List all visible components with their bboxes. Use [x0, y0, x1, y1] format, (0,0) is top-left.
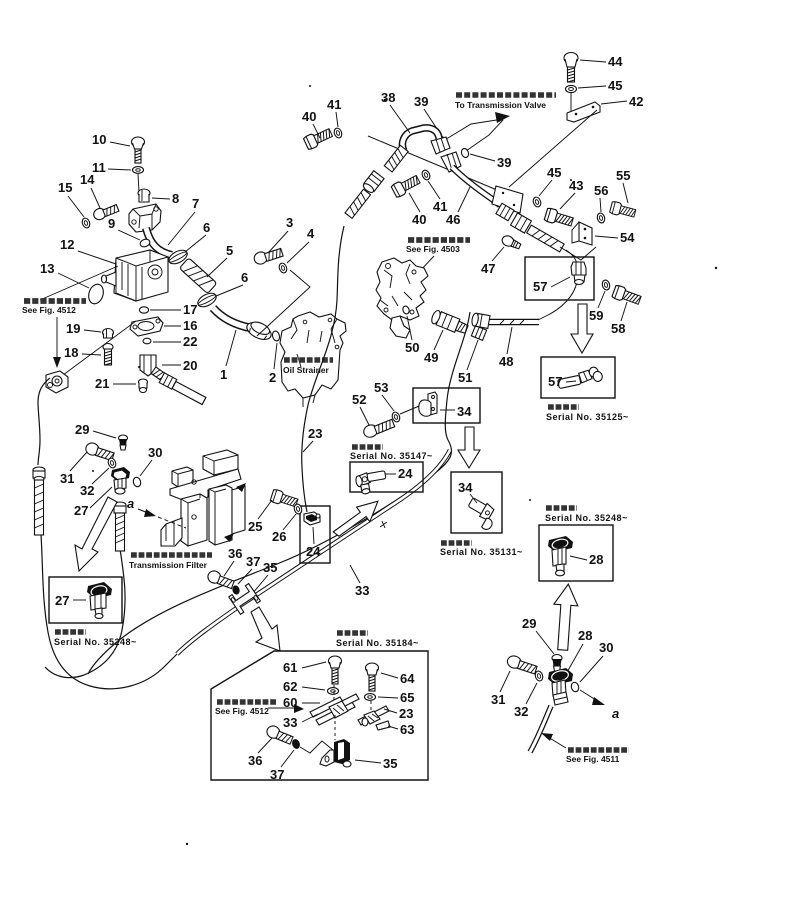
svg-text:32: 32: [514, 704, 528, 719]
svg-text:15: 15: [58, 180, 72, 195]
svg-text:36: 36: [248, 753, 262, 768]
svg-text:36: 36: [228, 546, 242, 561]
svg-text:34: 34: [457, 404, 472, 419]
svg-text:48: 48: [499, 354, 513, 369]
svg-text:33: 33: [355, 583, 369, 598]
svg-text:6: 6: [203, 220, 210, 235]
svg-text:Serial No. 35131~: Serial No. 35131~: [440, 547, 523, 557]
svg-text:9: 9: [108, 216, 115, 231]
svg-text:28: 28: [578, 628, 592, 643]
svg-text:40: 40: [302, 109, 316, 124]
svg-text:64: 64: [400, 671, 415, 686]
svg-text:45: 45: [608, 78, 622, 93]
svg-text:8: 8: [172, 191, 179, 206]
svg-text:55: 55: [616, 168, 630, 183]
svg-text:59: 59: [589, 308, 603, 323]
svg-text:See Fig. 4512: See Fig. 4512: [215, 706, 269, 716]
svg-text:a: a: [127, 496, 134, 511]
svg-text:41: 41: [327, 97, 341, 112]
svg-text:23: 23: [308, 426, 322, 441]
svg-text:22: 22: [183, 334, 197, 349]
svg-text:4: 4: [307, 226, 315, 241]
svg-text:53: 53: [374, 380, 388, 395]
svg-text:Serial No. 35125~: Serial No. 35125~: [546, 412, 629, 422]
svg-text:24: 24: [306, 544, 321, 559]
svg-text:65: 65: [400, 690, 414, 705]
svg-text:56: 56: [594, 183, 608, 198]
svg-text:20: 20: [183, 358, 197, 373]
svg-text:31: 31: [491, 692, 505, 707]
svg-text:29: 29: [522, 616, 536, 631]
svg-text:57: 57: [548, 374, 562, 389]
svg-text:32: 32: [80, 483, 94, 498]
svg-text:28: 28: [589, 552, 603, 567]
svg-text:12: 12: [60, 237, 74, 252]
svg-text:To Transmission Valve: To Transmission Valve: [455, 100, 546, 110]
svg-text:Serial No. 35248~: Serial No. 35248~: [545, 513, 628, 523]
svg-text:See Fig. 4511: See Fig. 4511: [566, 754, 620, 764]
svg-text:46: 46: [446, 212, 460, 227]
svg-text:13: 13: [40, 261, 54, 276]
svg-text:51: 51: [458, 370, 472, 385]
svg-text:See Fig. 4503: See Fig. 4503: [406, 244, 460, 254]
svg-text:49: 49: [424, 350, 438, 365]
svg-text:17: 17: [183, 302, 197, 317]
svg-text:40: 40: [412, 212, 426, 227]
svg-text:See Fig. 4512: See Fig. 4512: [22, 305, 76, 315]
svg-text:5: 5: [226, 243, 233, 258]
svg-text:16: 16: [183, 318, 197, 333]
svg-text:18: 18: [64, 345, 78, 360]
svg-text:21: 21: [95, 376, 109, 391]
svg-text:2: 2: [269, 370, 276, 385]
svg-text:39: 39: [497, 155, 511, 170]
svg-text:39: 39: [414, 94, 428, 109]
svg-text:25: 25: [248, 519, 262, 534]
svg-text:61: 61: [283, 660, 297, 675]
svg-text:44: 44: [608, 54, 623, 69]
svg-text:34: 34: [458, 480, 473, 495]
svg-text:19: 19: [66, 321, 80, 336]
svg-text:37: 37: [246, 554, 260, 569]
svg-text:54: 54: [620, 230, 635, 245]
svg-text:35: 35: [263, 560, 277, 575]
svg-text:38: 38: [381, 90, 395, 105]
svg-text:23: 23: [399, 706, 413, 721]
svg-text:58: 58: [611, 321, 625, 336]
svg-text:42: 42: [629, 94, 643, 109]
svg-text:62: 62: [283, 679, 297, 694]
svg-text:7: 7: [192, 196, 199, 211]
svg-text:31: 31: [60, 471, 74, 486]
svg-text:Transmission Filter: Transmission Filter: [129, 560, 208, 570]
svg-text:a: a: [612, 706, 619, 721]
svg-text:63: 63: [400, 722, 414, 737]
svg-text:Oil Strainer: Oil Strainer: [283, 365, 330, 375]
svg-text:10: 10: [92, 132, 106, 147]
svg-text:14: 14: [80, 172, 95, 187]
svg-text:29: 29: [75, 422, 89, 437]
svg-text:30: 30: [599, 640, 613, 655]
svg-text:47: 47: [481, 261, 495, 276]
svg-text:33: 33: [283, 715, 297, 730]
svg-text:45: 45: [547, 165, 561, 180]
svg-text:Serial No. 35184~: Serial No. 35184~: [336, 638, 419, 648]
svg-text:60: 60: [283, 695, 297, 710]
svg-text:Serial No. 35248~: Serial No. 35248~: [54, 637, 137, 647]
svg-text:57: 57: [533, 279, 547, 294]
svg-text:37: 37: [270, 767, 284, 782]
svg-text:30: 30: [148, 445, 162, 460]
svg-text:50: 50: [405, 340, 419, 355]
svg-text:3: 3: [286, 215, 293, 230]
svg-text:52: 52: [352, 392, 366, 407]
svg-text:27: 27: [74, 503, 88, 518]
svg-text:27: 27: [55, 593, 69, 608]
svg-text:1: 1: [220, 367, 227, 382]
svg-text:24: 24: [398, 466, 413, 481]
svg-text:6: 6: [241, 270, 248, 285]
svg-text:26: 26: [272, 529, 286, 544]
svg-text:35: 35: [383, 756, 397, 771]
svg-text:Serial No. 35147~: Serial No. 35147~: [350, 451, 433, 461]
